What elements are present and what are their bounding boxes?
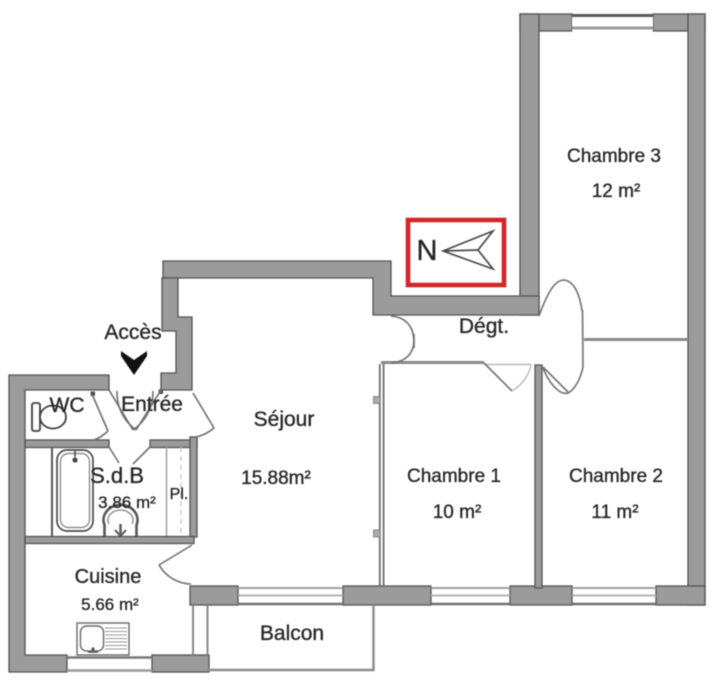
svg-text:Chambre 1: Chambre 1 xyxy=(407,466,501,487)
svg-text:Entrée: Entrée xyxy=(121,393,183,416)
svg-text:Cuisine: Cuisine xyxy=(75,566,142,588)
svg-text:15.88m²: 15.88m² xyxy=(241,468,311,489)
svg-text:3.86 m²: 3.86 m² xyxy=(98,493,156,512)
svg-text:10 m²: 10 m² xyxy=(433,502,482,523)
svg-text:Dégt.: Dégt. xyxy=(459,315,509,338)
svg-text:5.66 m²: 5.66 m² xyxy=(81,595,139,614)
svg-text:N: N xyxy=(417,235,438,267)
svg-text:WC: WC xyxy=(50,394,85,417)
svg-text:Accès: Accès xyxy=(104,321,161,344)
svg-text:Pl.: Pl. xyxy=(170,486,189,503)
svg-text:S.d.B: S.d.B xyxy=(90,463,144,488)
svg-text:12 m²: 12 m² xyxy=(592,181,641,202)
svg-text:Balcon: Balcon xyxy=(260,622,324,645)
svg-text:Chambre 3: Chambre 3 xyxy=(567,146,661,167)
svg-text:Chambre 2: Chambre 2 xyxy=(569,466,663,487)
svg-text:Séjour: Séjour xyxy=(254,408,315,431)
svg-text:11 m²: 11 m² xyxy=(591,502,638,523)
